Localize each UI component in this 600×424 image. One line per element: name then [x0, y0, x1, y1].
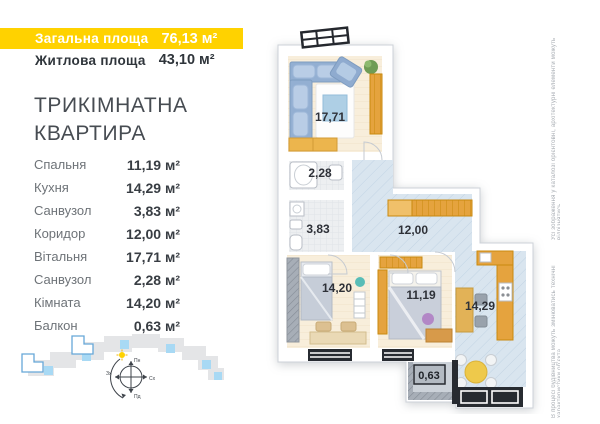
- room-name: Кухня: [34, 180, 69, 195]
- list-item: Спальня 11,19 м²: [34, 153, 180, 176]
- disclaimer-top: Усі зображення у каталозі орієнтовні, ар…: [551, 28, 560, 240]
- kitchen-label: 14,29: [465, 299, 495, 313]
- total-area-label: Загальна площа: [35, 31, 148, 46]
- dresser: [426, 329, 452, 342]
- sun-path-arrow: [111, 359, 123, 398]
- plant-small: [355, 277, 365, 287]
- bedroom-left-window-icon: [308, 349, 352, 361]
- living-room-label: 17,71: [315, 110, 345, 124]
- compass-south-label: Пд: [134, 394, 141, 400]
- room-name: Санвузол: [34, 203, 91, 218]
- kitchen-window-icon: [457, 387, 523, 407]
- room-name: Кімната: [34, 295, 81, 310]
- bathroom-mid-fixtures: [290, 202, 304, 250]
- total-area-badge: Загальна площа 76,13 м²: [0, 28, 243, 49]
- hallway-label: 12,00: [398, 223, 428, 237]
- rack: [354, 292, 365, 318]
- bedroom-mid-window-icon: [382, 349, 414, 361]
- list-item: Коридор 12,00 м²: [34, 222, 180, 245]
- closet: [287, 258, 299, 342]
- compass-north-label: Пн: [134, 358, 141, 364]
- living-window-icon: [301, 28, 348, 48]
- flat-card: Загальна площа 76,13 м² Житлова площа 43…: [0, 0, 600, 424]
- compass-west-label: Зх: [106, 371, 112, 377]
- disclaimer-bottom: В процесі будівництва можуть змінюватись…: [551, 246, 560, 418]
- total-area-value: 76,13 м²: [161, 31, 217, 47]
- room-area: 11,19 м²: [127, 157, 180, 173]
- room-name: Санвузол: [34, 272, 91, 287]
- bedroom-mid-label: 11,19: [406, 288, 436, 302]
- room-area: 14,29 м²: [126, 180, 180, 196]
- floor-plan: 17,71 2,28 3,83 12,00 14,20 11,19 14,29 …: [230, 10, 560, 414]
- room-area: 14,20 м²: [126, 295, 180, 311]
- room-area: 2,28 м²: [134, 272, 180, 288]
- page-title-line1: ТРИКІМНАТНА: [34, 92, 188, 120]
- room-name: Спальня: [34, 157, 86, 172]
- living-area-label: Житлова площа: [35, 53, 146, 68]
- page-title: ТРИКІМНАТНА КВАРТИРА: [34, 92, 188, 149]
- round-table: [465, 361, 487, 383]
- sink: [480, 253, 491, 262]
- room-name: Вітальня: [34, 249, 87, 264]
- bathroom-top-label: 2,28: [308, 166, 332, 180]
- list-item: Вітальня 17,71 м²: [34, 245, 180, 268]
- room-area: 12,00 м²: [126, 226, 180, 242]
- pouf: [422, 313, 434, 325]
- kitchen-counter-side: [497, 265, 513, 340]
- stove: [499, 283, 512, 301]
- site-minimap: Пн Пд Сх Зх: [14, 328, 224, 420]
- room-area: 3,83 м²: [134, 203, 180, 219]
- desk: [310, 332, 366, 344]
- compass: Пн Пд Сх Зх: [106, 350, 156, 401]
- living-wardrobe: [370, 74, 382, 134]
- room-name: Коридор: [34, 226, 85, 241]
- room-area: 17,71 м²: [126, 249, 180, 265]
- list-item: Кухня 14,29 м²: [34, 176, 180, 199]
- living-area-value: 43,10 м²: [159, 52, 215, 68]
- living-area-row: Житлова площа 43,10 м²: [35, 52, 215, 68]
- bedroom-left-label: 14,20: [322, 281, 352, 295]
- page-title-line2: КВАРТИРА: [34, 120, 188, 148]
- room-list: Спальня 11,19 м² Кухня 14,29 м² Санвузол…: [34, 153, 180, 337]
- list-item: Санвузол 2,28 м²: [34, 268, 180, 291]
- balcony-label: 0,63: [418, 370, 439, 382]
- list-item: Кімната 14,20 м²: [34, 291, 180, 314]
- list-item: Санвузол 3,83 м²: [34, 199, 180, 222]
- compass-east-label: Сх: [149, 376, 156, 382]
- hallway-floor: [352, 160, 393, 252]
- bathroom-mid-label: 3,83: [306, 222, 330, 236]
